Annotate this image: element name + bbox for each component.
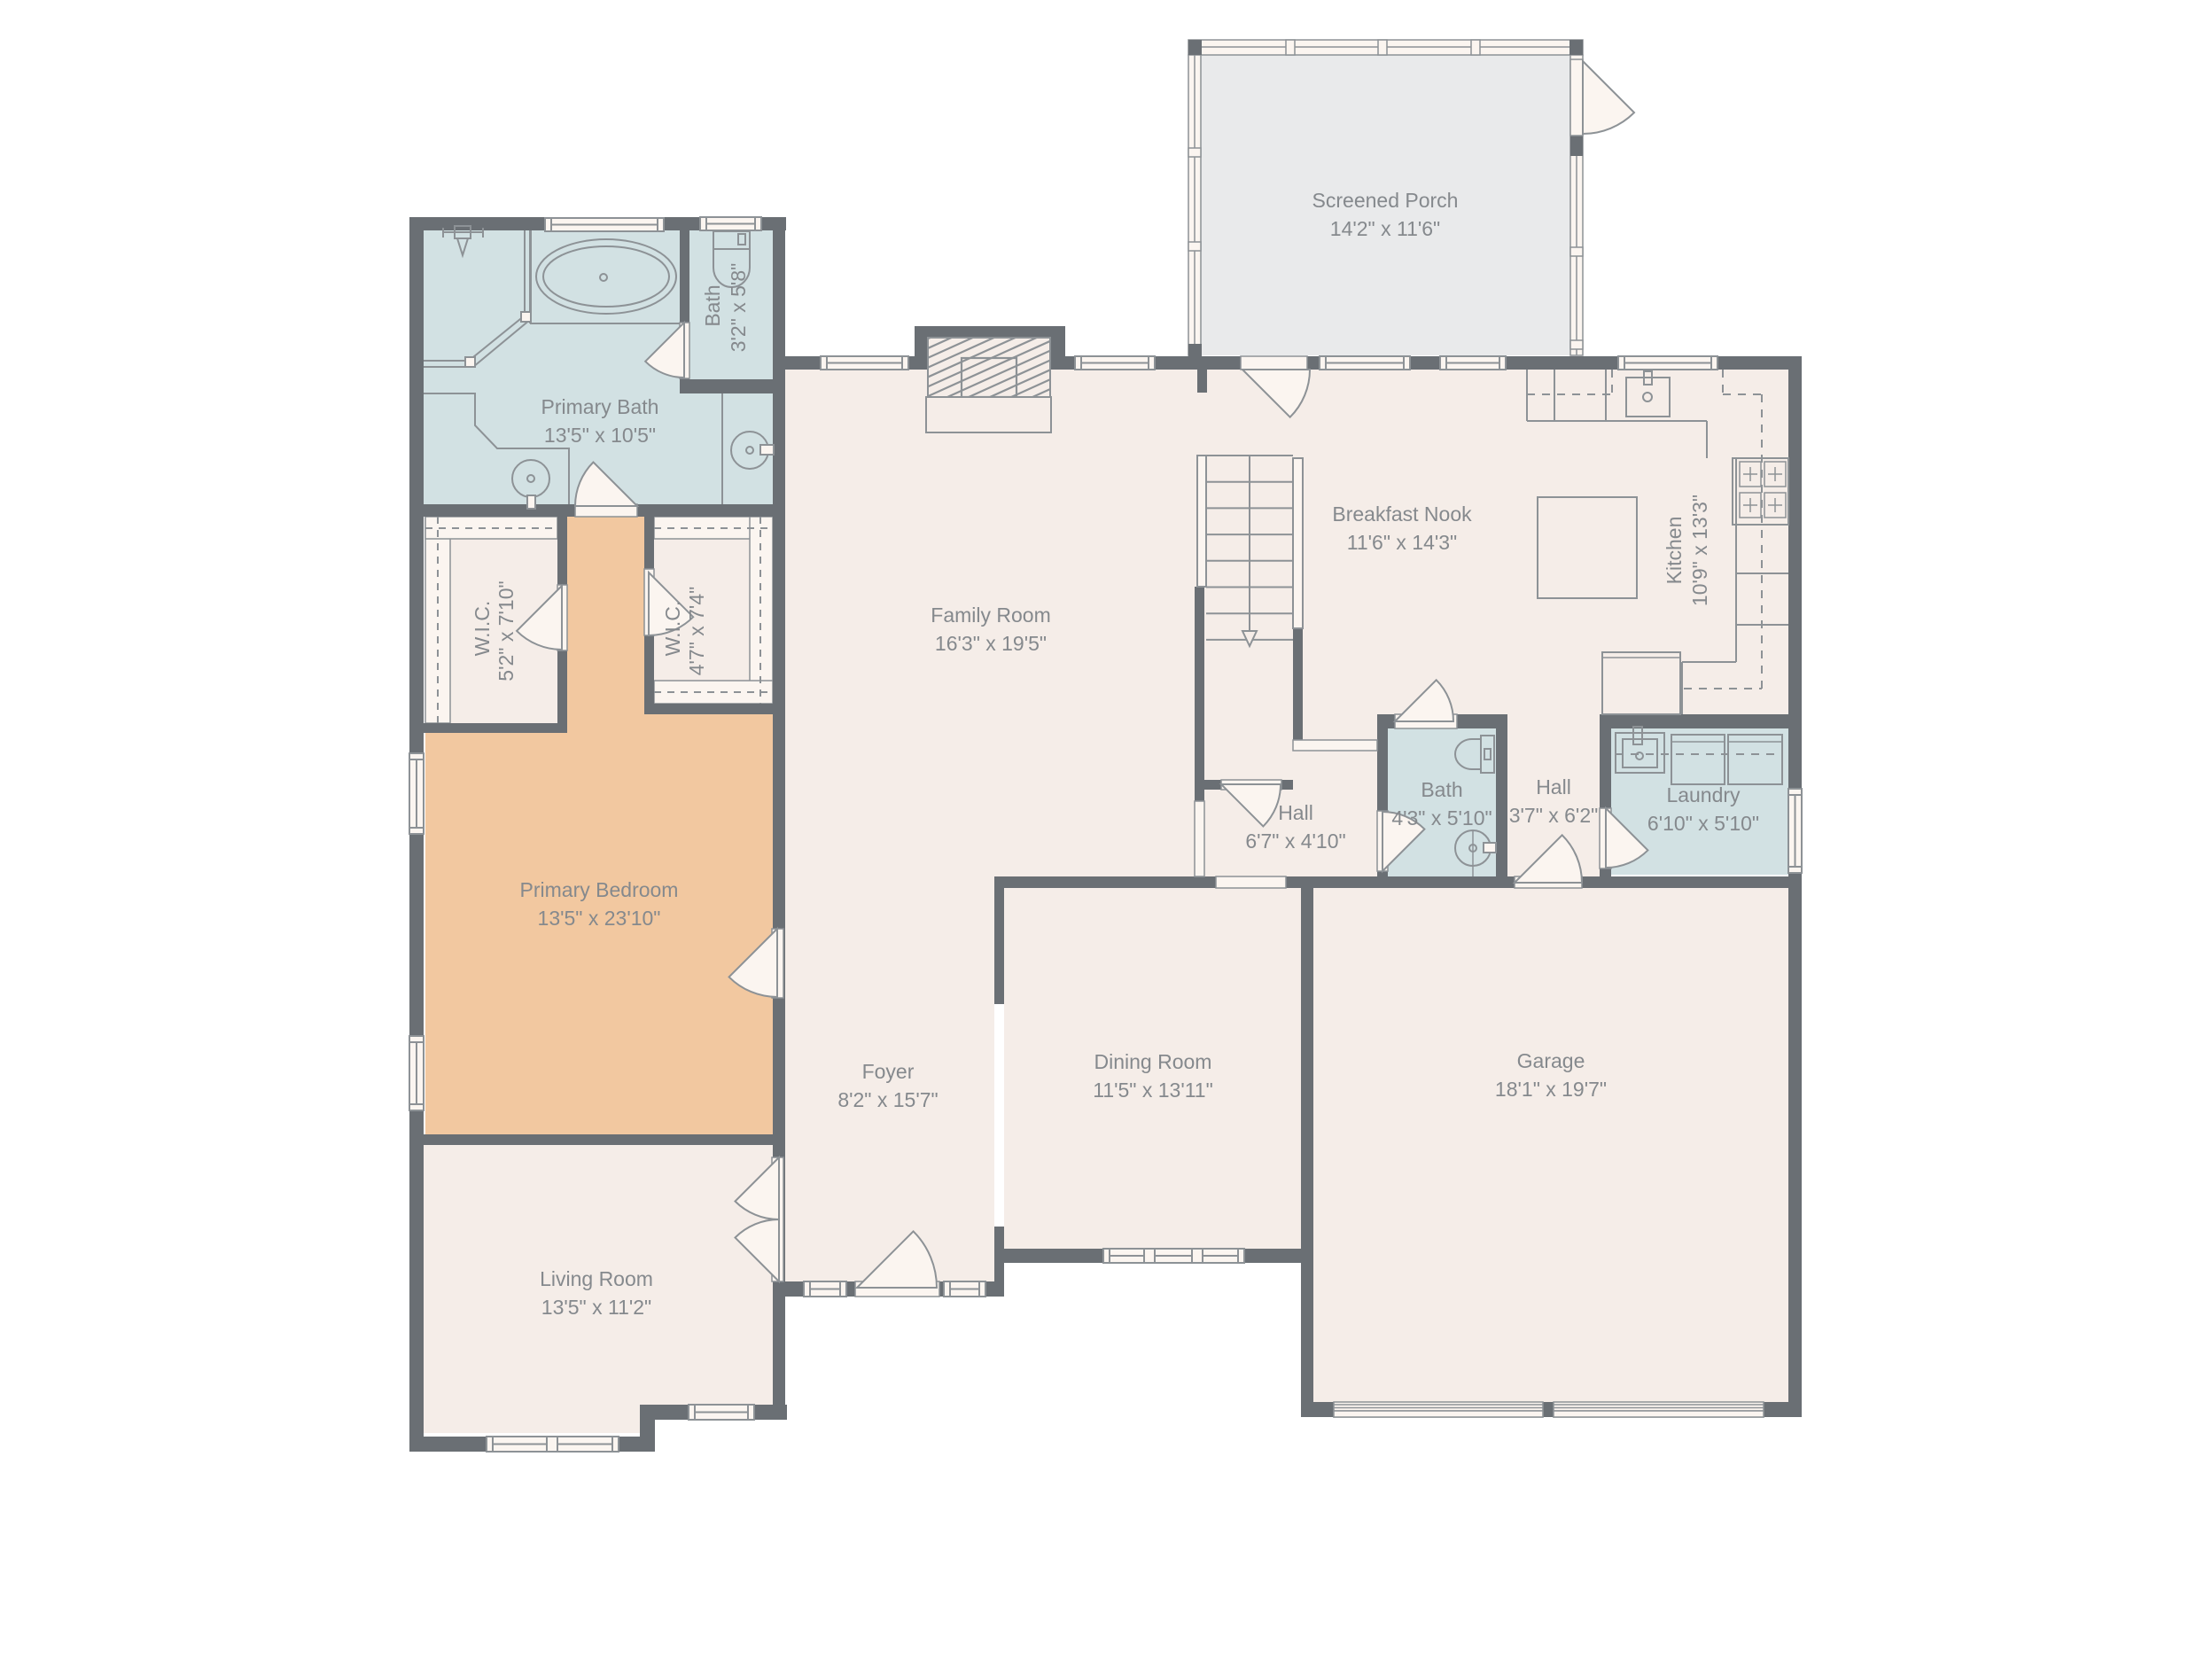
- svg-text:11'6" x 14'3": 11'6" x 14'3": [1347, 531, 1457, 554]
- svg-text:5'2" x 7'10": 5'2" x 7'10": [495, 580, 518, 681]
- svg-text:Kitchen: Kitchen: [1663, 517, 1686, 585]
- svg-text:W.I.C.: W.I.C.: [471, 601, 494, 657]
- svg-text:13'5" x 23'10": 13'5" x 23'10": [538, 907, 661, 930]
- svg-text:Dining Room: Dining Room: [1094, 1050, 1212, 1073]
- svg-text:Foyer: Foyer: [862, 1060, 915, 1083]
- svg-text:Living Room: Living Room: [540, 1267, 653, 1290]
- svg-text:14'2" x 11'6": 14'2" x 11'6": [1330, 217, 1440, 240]
- svg-text:Bath: Bath: [1421, 778, 1462, 801]
- svg-text:11'5" x 13'11": 11'5" x 13'11": [1093, 1079, 1213, 1102]
- svg-text:Family Room: Family Room: [931, 604, 1050, 627]
- svg-text:6'10" x 5'10": 6'10" x 5'10": [1647, 812, 1759, 835]
- svg-text:16'3" x 19'5": 16'3" x 19'5": [935, 632, 1047, 655]
- svg-text:4'7" x 7'4": 4'7" x 7'4": [685, 587, 708, 676]
- svg-text:Primary Bedroom: Primary Bedroom: [520, 878, 679, 901]
- svg-text:W.I.C.: W.I.C.: [661, 601, 684, 657]
- svg-text:4'3" x 5'10": 4'3" x 5'10": [1391, 806, 1492, 829]
- svg-text:Garage: Garage: [1517, 1049, 1585, 1072]
- svg-text:13'5" x 11'2": 13'5" x 11'2": [541, 1296, 651, 1319]
- svg-text:8'2" x 15'7": 8'2" x 15'7": [837, 1088, 938, 1111]
- svg-text:Bath: Bath: [701, 284, 724, 326]
- svg-text:Hall: Hall: [1536, 775, 1571, 798]
- svg-text:3'7" x 6'2": 3'7" x 6'2": [1509, 804, 1599, 827]
- svg-text:Primary Bath: Primary Bath: [541, 395, 659, 418]
- svg-text:Screened Porch: Screened Porch: [1312, 189, 1459, 212]
- svg-text:3'2" x 5'8": 3'2" x 5'8": [727, 263, 750, 353]
- svg-text:13'5" x 10'5": 13'5" x 10'5": [544, 424, 656, 447]
- svg-text:Breakfast Nook: Breakfast Nook: [1332, 502, 1472, 526]
- svg-text:Hall: Hall: [1278, 801, 1313, 824]
- svg-text:18'1" x 19'7": 18'1" x 19'7": [1495, 1078, 1607, 1101]
- svg-text:10'9" x 13'3": 10'9" x 13'3": [1688, 495, 1711, 606]
- svg-text:Laundry: Laundry: [1666, 783, 1741, 806]
- svg-text:6'7" x 4'10": 6'7" x 4'10": [1245, 829, 1345, 853]
